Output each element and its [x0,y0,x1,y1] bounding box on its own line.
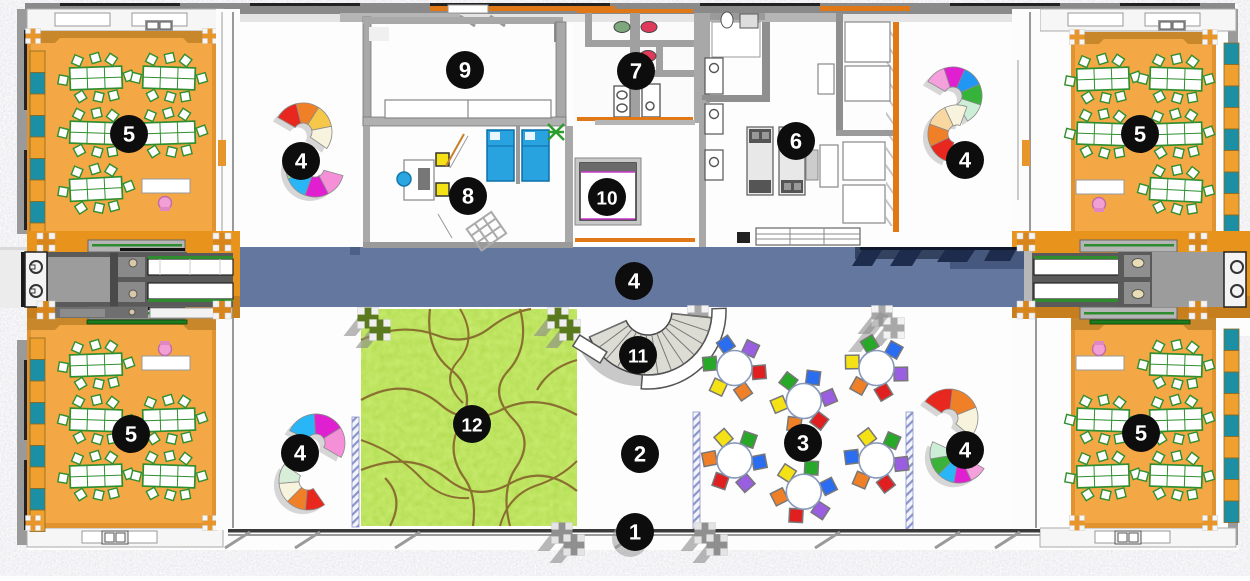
svg-text:5: 5 [1134,122,1146,147]
svg-text:4: 4 [295,149,308,174]
svg-text:4: 4 [628,269,641,294]
svg-text:3: 3 [797,431,809,456]
svg-text:4: 4 [294,441,307,466]
svg-text:1: 1 [629,520,641,545]
svg-text:5: 5 [123,122,135,147]
svg-text:5: 5 [125,422,137,447]
svg-text:11: 11 [628,347,649,368]
svg-text:12: 12 [461,416,482,437]
svg-text:10: 10 [596,189,617,210]
svg-text:7: 7 [630,59,642,84]
svg-text:4: 4 [959,148,972,173]
svg-text:6: 6 [790,129,802,154]
svg-text:4: 4 [959,438,972,463]
svg-text:2: 2 [634,442,646,467]
svg-text:8: 8 [462,184,474,209]
svg-text:5: 5 [1135,421,1147,446]
svg-text:9: 9 [459,58,471,83]
